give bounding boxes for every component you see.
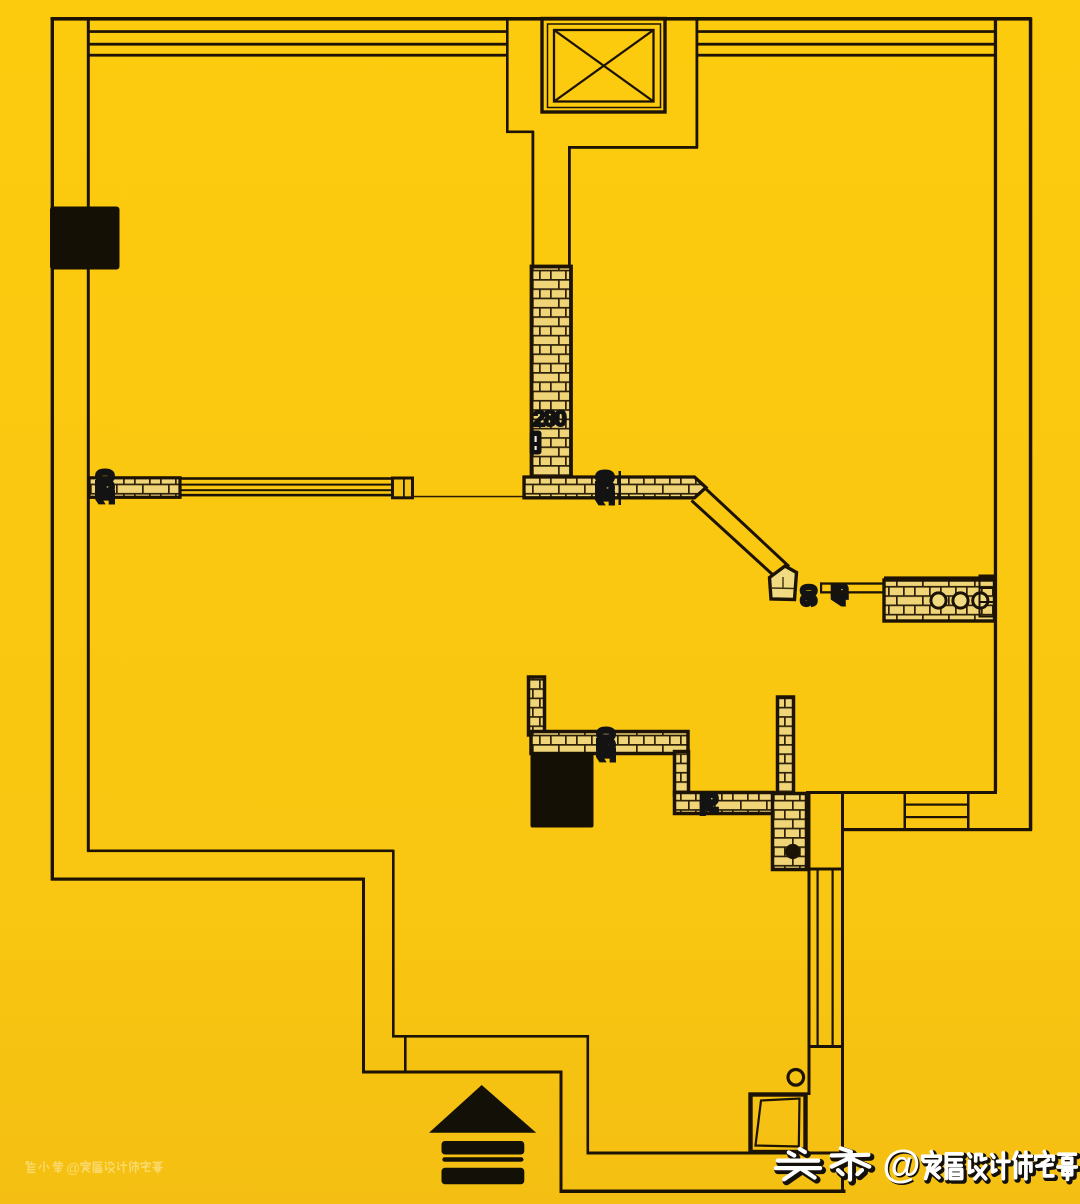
svg-text:45: 45 xyxy=(829,583,852,605)
svg-text:280: 280 xyxy=(533,406,566,431)
svg-text:150: 150 xyxy=(592,471,618,505)
svg-text:75: 75 xyxy=(697,793,722,815)
svg-text:150: 150 xyxy=(92,470,118,504)
svg-text:@: @ xyxy=(66,1160,80,1176)
svg-text:90: 90 xyxy=(798,585,821,606)
svg-text:150: 150 xyxy=(593,728,619,762)
svg-text:@: @ xyxy=(883,1144,921,1187)
